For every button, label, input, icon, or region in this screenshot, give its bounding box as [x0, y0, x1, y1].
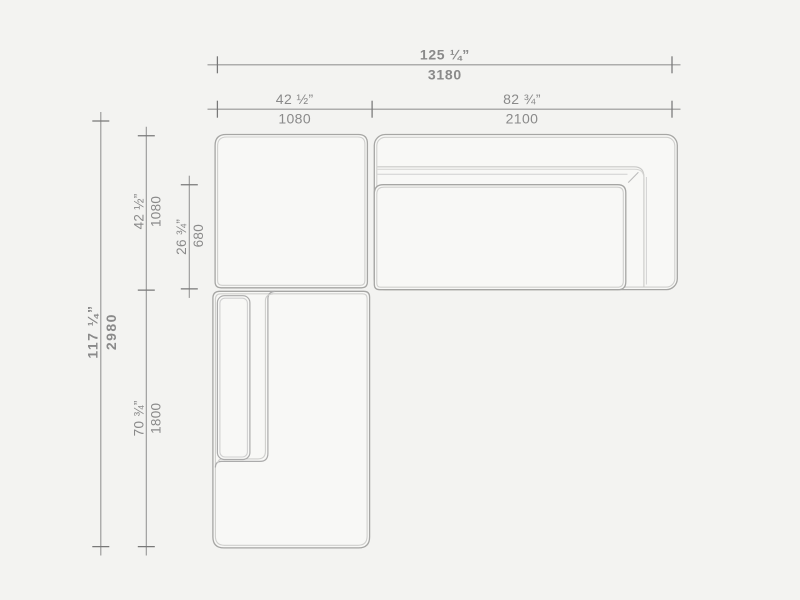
svg-text:42 ½”: 42 ½” — [131, 193, 146, 229]
svg-text:1080: 1080 — [278, 111, 311, 127]
svg-text:1080: 1080 — [149, 196, 164, 227]
svg-text:117 ¼”: 117 ¼” — [84, 305, 100, 359]
svg-text:680: 680 — [191, 224, 206, 247]
svg-text:26 ¾”: 26 ¾” — [174, 219, 189, 255]
svg-text:2980: 2980 — [103, 313, 119, 350]
svg-text:42 ½”: 42 ½” — [276, 91, 314, 107]
svg-text:82 ¾”: 82 ¾” — [503, 91, 541, 107]
svg-text:70 ¾”: 70 ¾” — [131, 400, 146, 436]
svg-text:1800: 1800 — [149, 403, 164, 434]
svg-text:2100: 2100 — [506, 111, 539, 127]
svg-text:125 ¼”: 125 ¼” — [420, 47, 470, 63]
svg-text:3180: 3180 — [428, 67, 462, 83]
